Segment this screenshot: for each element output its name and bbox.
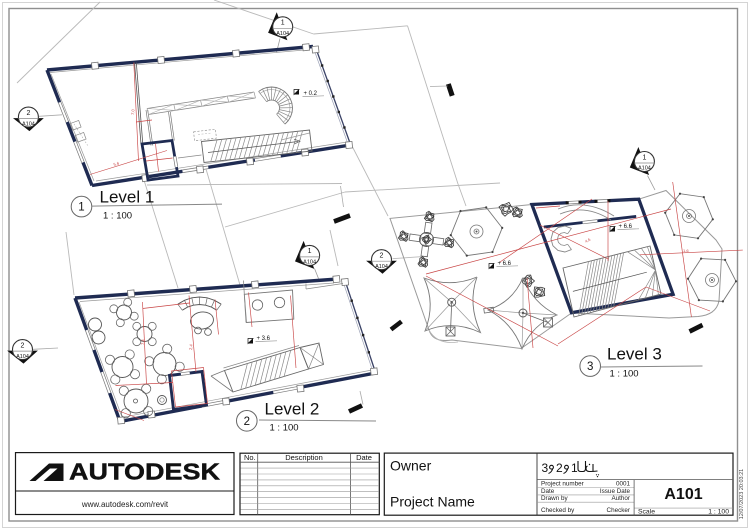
svg-text:A104: A104 (638, 166, 651, 172)
svg-text:Level 1: Level 1 (100, 188, 155, 207)
svg-text:AUTODESK: AUTODESK (69, 459, 220, 485)
svg-text:Date: Date (541, 488, 555, 495)
svg-text:2: 2 (26, 110, 30, 117)
svg-text:1 : 100: 1 : 100 (610, 369, 639, 380)
svg-text:A104: A104 (22, 121, 35, 127)
svg-text:Project Name: Project Name (390, 494, 475, 510)
svg-text:Description: Description (285, 453, 323, 462)
svg-text:Checked by: Checked by (541, 507, 575, 514)
svg-text:1: 1 (571, 461, 578, 475)
svg-text:Issue Date: Issue Date (600, 488, 631, 495)
svg-text:Owner: Owner (390, 458, 432, 474)
svg-text:Level 3: Level 3 (607, 345, 662, 364)
svg-text:1: 1 (642, 154, 646, 161)
svg-text:Drawn by: Drawn by (541, 495, 568, 502)
svg-text:3: 3 (542, 461, 549, 475)
svg-text:Author: Author (611, 495, 630, 502)
svg-text:A104: A104 (375, 264, 388, 270)
svg-text:1 : 100: 1 : 100 (270, 423, 299, 434)
svg-text:Scale: Scale (638, 509, 655, 516)
svg-text:0001: 0001 (616, 480, 631, 487)
svg-text:Date: Date (356, 453, 372, 462)
svg-text:Checker: Checker (607, 507, 630, 514)
svg-text:Project number: Project number (541, 480, 584, 487)
svg-text:1 : 100: 1 : 100 (708, 509, 729, 516)
svg-text:No.: No. (244, 453, 256, 462)
svg-text:A104: A104 (276, 31, 289, 37)
svg-text:2: 2 (556, 461, 563, 475)
svg-text:A104: A104 (303, 260, 316, 266)
svg-text:2: 2 (21, 342, 25, 349)
svg-text:Level 2: Level 2 (265, 400, 320, 419)
svg-text:1.6: 1.6 (683, 248, 689, 253)
svg-text:2: 2 (244, 416, 250, 428)
svg-text:1: 1 (78, 202, 84, 214)
svg-text:A101: A101 (664, 486, 702, 503)
svg-text:1: 1 (281, 20, 285, 27)
svg-text:2: 2 (380, 253, 384, 260)
svg-text:A104: A104 (16, 354, 29, 360)
svg-text:3: 3 (587, 361, 593, 373)
svg-text:1 : 100: 1 : 100 (103, 211, 132, 222)
svg-text:1: 1 (308, 248, 312, 255)
svg-text:12/07/2023 20:03:21: 12/07/2023 20:03:21 (739, 469, 745, 519)
svg-text:www.autodesk.com/revit: www.autodesk.com/revit (81, 500, 169, 509)
